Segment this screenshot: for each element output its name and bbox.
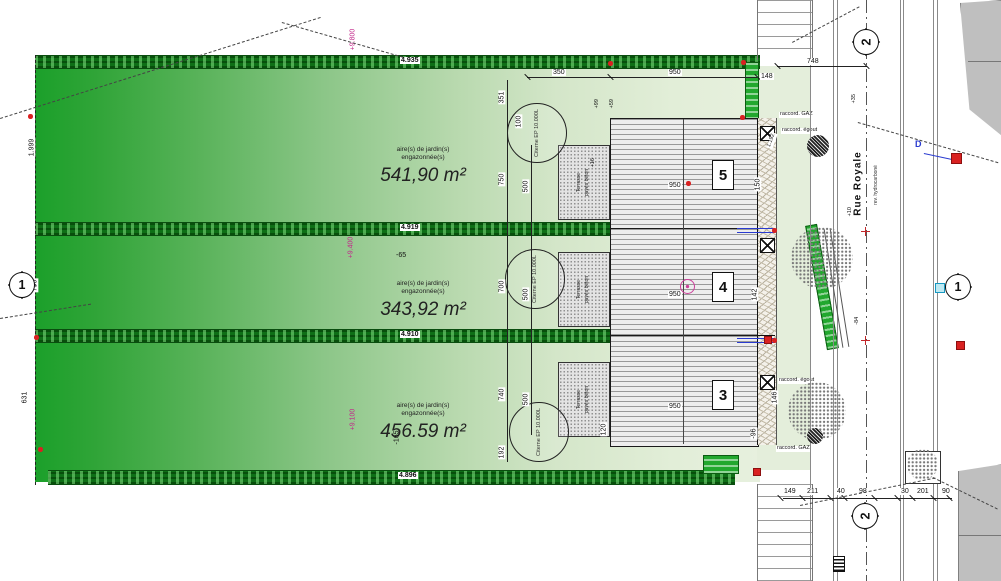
unit-number-3: 3: [712, 380, 734, 410]
terrace-label-line2: pavés béton: [584, 386, 592, 413]
street-name-label: Rue Royale: [853, 151, 864, 215]
parcel-caption: engazonnée(s): [338, 410, 508, 418]
utility-box: [760, 375, 775, 390]
parcel-area-value: 541,90 m²: [338, 165, 508, 187]
terrace-label-line2: pavés béton: [584, 169, 592, 196]
parcel-area-3: aire(s) de jardin(s) engazonnée(s) 456.5…: [338, 402, 508, 443]
water-connection-point: [772, 338, 777, 343]
neighbour-building-bottom: [958, 464, 1001, 581]
site-plan: 4.935 4.919 4.910 4.896 aire(s) de jardi…: [0, 0, 1001, 581]
unit-width-dim: 950: [668, 403, 682, 410]
terrace-label-line1: Terrasse: [577, 169, 585, 196]
water-connection-point: [772, 228, 777, 233]
drain-grate: [833, 556, 845, 572]
parcel-caption: engazonnée(s): [338, 154, 508, 162]
unit-number-5: 5: [712, 160, 734, 190]
section-marker-circle: 1: [9, 272, 35, 298]
house-unit-5: [610, 118, 759, 230]
parcel-caption: aire(s) de jardin(s): [338, 402, 508, 410]
section-reference-square: [935, 283, 945, 293]
d-marker-line: [924, 153, 954, 160]
hedge-mid1: [35, 222, 610, 236]
dim-label: 146: [771, 391, 778, 405]
utility-box: [760, 238, 775, 253]
terrace-label: Terrasse pavés béton: [577, 276, 592, 303]
dim-line-terrace: [531, 145, 532, 435]
level-delta-label: -165: [394, 430, 401, 444]
street-surface-note: rev. hydrocarboné: [873, 165, 879, 205]
dim-label: 201: [916, 488, 930, 495]
boundary-extension-dash: [858, 122, 999, 163]
terrace-label-line1: Terrasse: [577, 386, 585, 413]
section-marker-circle: 1: [945, 274, 971, 300]
boundary-point: [34, 335, 39, 340]
dim-label: +10: [848, 207, 854, 216]
dim-label: 211: [806, 488, 819, 495]
utility-point: [956, 341, 965, 350]
terrace-label-line2: pavés béton: [584, 276, 592, 303]
dim-label: 148: [760, 73, 774, 80]
parcel-boundary-left: [35, 55, 36, 485]
dim-label: 142: [751, 288, 758, 302]
section-marker-circle: 2: [853, 29, 879, 55]
neighbour-building-top: [960, 0, 1001, 152]
dim-label: +35: [852, 94, 858, 103]
dim-label: 950: [668, 69, 682, 76]
elevation-label: +9.100: [349, 409, 356, 431]
d-marker-point: [951, 153, 962, 164]
dim-label: 740: [498, 388, 505, 402]
water-connection-line: [737, 228, 775, 229]
section-marker-circle: 2: [852, 503, 878, 529]
boundary-point: [686, 181, 691, 186]
property-line: [933, 0, 934, 581]
cistern-3: Citerne EP 10.000L: [509, 402, 569, 462]
dim-label: 150: [754, 178, 761, 192]
hedge-level-label: 4.919: [400, 224, 420, 231]
dim-label: 192: [498, 446, 505, 460]
parcel-area-1: aire(s) de jardin(s) engazonnée(s) 541,9…: [338, 146, 508, 187]
dim-label: 351: [498, 91, 505, 105]
terrace-1: Terrasse pavés béton: [558, 145, 610, 220]
dim-label: 120: [600, 423, 607, 437]
dim-label: -84: [855, 317, 861, 325]
section-marker-number: 2: [858, 513, 872, 520]
hedge-level-label: 4.935: [400, 57, 420, 64]
dim-label: -96: [751, 427, 758, 439]
parcel-area-value: 343,92 m²: [338, 299, 508, 321]
dim-line-top: [527, 77, 757, 78]
hedge-front-top: [745, 62, 759, 120]
dim-line-street: [777, 66, 867, 67]
section-marker-number: 1: [19, 278, 26, 292]
dim-label: +16: [591, 158, 597, 167]
dim-label: 500: [522, 393, 529, 407]
tree-trunk: [807, 428, 823, 444]
street-level-cross: [861, 336, 870, 345]
section-marker-1-left: 1: [9, 272, 35, 298]
cistern-label: Citerne EP 10.000L: [534, 109, 540, 157]
hedge-level-label: 4.910: [400, 331, 420, 338]
boundary-dim: 631: [21, 391, 28, 405]
unit-number-4: 4: [712, 272, 734, 302]
hedge-top: [35, 55, 760, 69]
section-marker-1-right: 1: [945, 274, 971, 300]
terrace-label: Terrasse pavés béton: [577, 169, 592, 196]
elevation-label: +9.400: [347, 237, 354, 259]
utility-label-gaz: raccord. GAZ: [776, 446, 811, 452]
boundary-point: [38, 447, 43, 452]
water-connection-line: [737, 232, 775, 233]
dim-label: 750: [498, 173, 505, 187]
section-marker-2-top: 2: [853, 29, 879, 55]
tree-canopy: [907, 449, 938, 480]
parcel-area-value: 456.59 m²: [338, 421, 508, 443]
cistern-2: Citerne EP 10.000L: [505, 249, 565, 309]
boundary-point: [608, 61, 613, 66]
utility-label-egout: raccord. égout: [781, 128, 818, 134]
elevation-label: +9.800: [349, 29, 356, 51]
cistern-label: Citerne EP 10.000L: [532, 255, 538, 303]
utility-label-gaz: raccord. GAZ: [779, 112, 814, 118]
boundary-dim: 1.999: [28, 138, 35, 158]
neighbour-building-line: [958, 535, 1001, 536]
dim-label: 40: [836, 488, 846, 495]
dim-label: 700: [498, 280, 505, 294]
parcel-caption: aire(s) de jardin(s): [338, 146, 508, 154]
utility-point: [764, 336, 772, 344]
dim-label: 90: [941, 488, 951, 495]
unit-width-dim: 950: [668, 291, 682, 298]
street-level-cross: [861, 227, 870, 236]
boundary-point: [740, 115, 745, 120]
boundary-point: [741, 60, 746, 65]
hedge-bottom: [48, 470, 735, 485]
section-marker-number: 1: [955, 280, 962, 294]
level-marker: [680, 279, 695, 294]
parcel-area-2: aire(s) de jardin(s) engazonnée(s) 343,9…: [338, 280, 508, 321]
level-delta-label: -65: [396, 252, 406, 259]
dim-label: 100: [515, 115, 522, 129]
utility-point: [753, 468, 761, 476]
parcel-caption: engazonnée(s): [338, 288, 508, 296]
house-unit-3: [610, 335, 759, 447]
dim-line-depth: [507, 80, 508, 462]
cistern-1: Citerne EP 10.000L: [507, 103, 567, 163]
hedge-front-bottom: [703, 455, 739, 474]
parcel-caption: aire(s) de jardin(s): [338, 280, 508, 288]
d-marker-label: D: [915, 140, 922, 149]
tree-canopy: [791, 227, 853, 289]
unit-width-dim: 950: [668, 182, 682, 189]
tree-trunk: [807, 135, 829, 157]
dim-line-bottom: [783, 498, 952, 499]
dim-label: 30: [900, 488, 910, 495]
dim-label: 500: [522, 288, 529, 302]
dim-label: 149: [783, 488, 797, 495]
dim-label: +59: [610, 99, 616, 108]
terrace-2: Terrasse pavés béton: [558, 252, 610, 327]
terrace-label-line1: Terrasse: [577, 276, 585, 303]
boundary-extension-dash: [282, 22, 403, 58]
boundary-point: [28, 114, 33, 119]
neighbour-building-line: [968, 61, 1001, 62]
terrace-label: Terrasse pavés béton: [577, 386, 592, 413]
section-marker-number: 2: [859, 39, 873, 46]
hedge-mid2: [35, 329, 610, 343]
section-marker-2-bottom: 2: [852, 503, 878, 529]
dim-label: 748: [806, 58, 820, 65]
cistern-label: Citerne EP 10.000L: [536, 408, 542, 456]
sidewalk-paving-top: [757, 0, 813, 60]
hedge-level-label: 4.896: [398, 472, 418, 479]
dim-label: +99: [595, 99, 601, 108]
dim-label: 500: [522, 180, 529, 194]
dim-label: 350: [552, 69, 566, 76]
